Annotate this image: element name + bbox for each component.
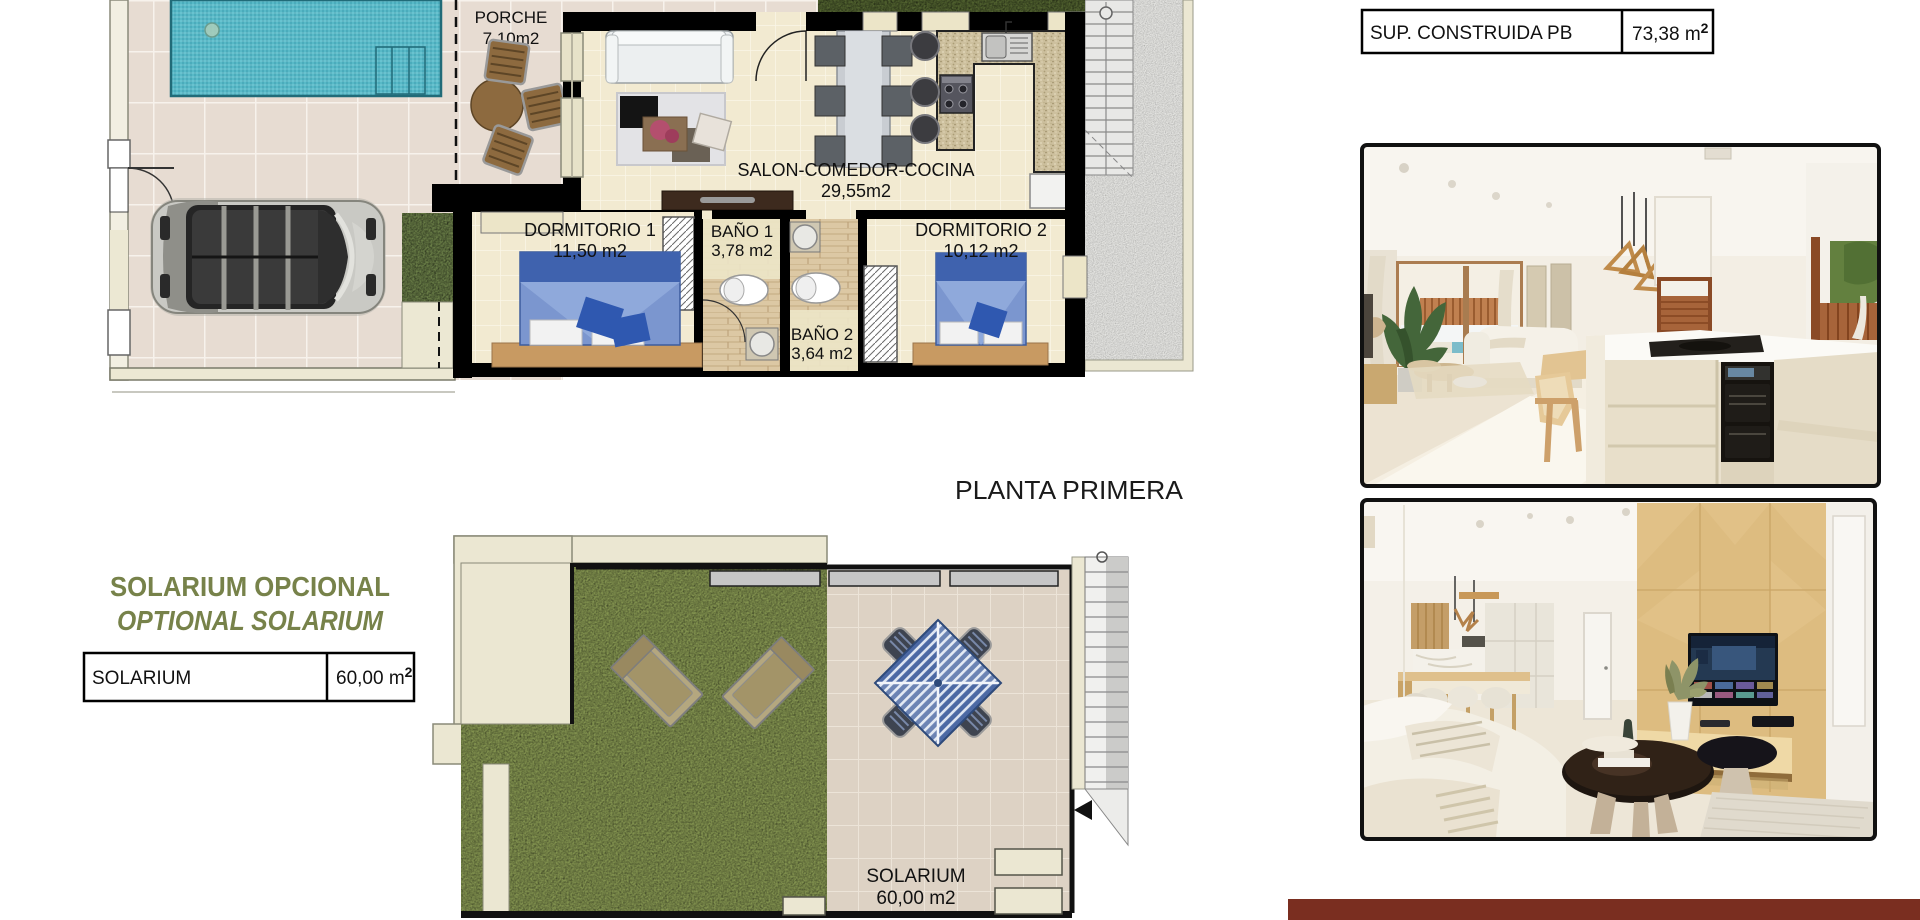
svg-text:3,64 m2: 3,64 m2 bbox=[791, 344, 852, 363]
svg-text:60,00 m2: 60,00 m2 bbox=[336, 664, 413, 689]
svg-text:SUP. CONSTRUIDA PB: SUP. CONSTRUIDA PB bbox=[1370, 23, 1572, 44]
svg-text:11,50 m2: 11,50 m2 bbox=[553, 241, 627, 261]
svg-text:SOLARIUM: SOLARIUM bbox=[92, 668, 191, 689]
svg-text:3,78 m2: 3,78 m2 bbox=[711, 241, 772, 260]
svg-text:OPTIONAL SOLARIUM: OPTIONAL SOLARIUM bbox=[117, 605, 384, 636]
svg-text:SALON-COMEDOR-COCINA: SALON-COMEDOR-COCINA bbox=[737, 160, 974, 180]
svg-text:BAÑO 1: BAÑO 1 bbox=[711, 222, 773, 241]
svg-text:29,55m2: 29,55m2 bbox=[821, 181, 891, 201]
svg-text:10,12 m2: 10,12 m2 bbox=[943, 241, 1018, 261]
svg-text:PLANTA PRIMERA: PLANTA PRIMERA bbox=[955, 475, 1184, 505]
svg-text:SOLARIUM OPCIONAL: SOLARIUM OPCIONAL bbox=[110, 571, 390, 602]
svg-text:60,00 m2: 60,00 m2 bbox=[876, 888, 955, 909]
svg-text:DORMITORIO 2: DORMITORIO 2 bbox=[915, 220, 1047, 240]
svg-text:BAÑO 2: BAÑO 2 bbox=[791, 325, 853, 344]
svg-text:73,38 m2: 73,38 m2 bbox=[1632, 20, 1709, 45]
svg-text:SOLARIUM: SOLARIUM bbox=[866, 866, 965, 887]
svg-text:PORCHE: PORCHE bbox=[475, 8, 548, 27]
svg-text:DORMITORIO 1: DORMITORIO 1 bbox=[524, 220, 656, 240]
